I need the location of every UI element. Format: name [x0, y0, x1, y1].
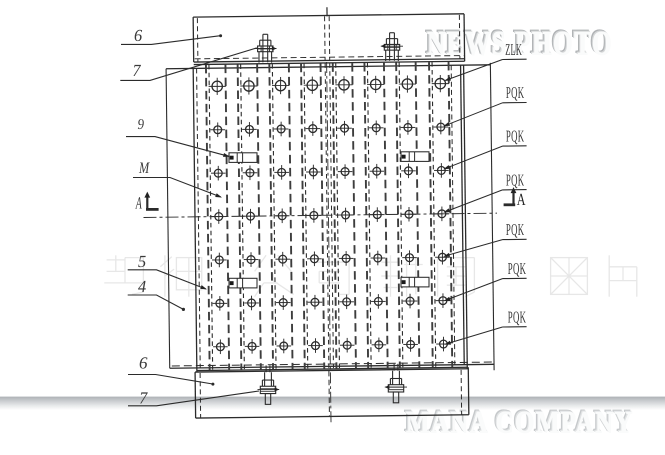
svg-text:9: 9: [138, 117, 145, 133]
svg-text:A: A: [517, 190, 526, 209]
svg-text:MANA COMPANY: MANA COMPANY: [406, 405, 634, 440]
svg-text:5: 5: [138, 252, 146, 271]
svg-text:PQK: PQK: [508, 259, 527, 278]
svg-text:PQK: PQK: [506, 220, 525, 239]
svg-text:M: M: [138, 160, 150, 177]
svg-text:ZLK: ZLK: [505, 40, 522, 59]
svg-text:PQK: PQK: [508, 307, 527, 326]
svg-text:PQK: PQK: [506, 83, 525, 102]
svg-text:PQK: PQK: [506, 127, 525, 146]
svg-text:7: 7: [139, 389, 148, 408]
svg-text:6: 6: [139, 354, 148, 373]
svg-text:A: A: [135, 194, 142, 213]
svg-text:6: 6: [134, 26, 143, 45]
svg-text:4: 4: [138, 277, 147, 296]
svg-text:7: 7: [133, 61, 142, 80]
svg-text:PQK: PQK: [506, 170, 525, 189]
